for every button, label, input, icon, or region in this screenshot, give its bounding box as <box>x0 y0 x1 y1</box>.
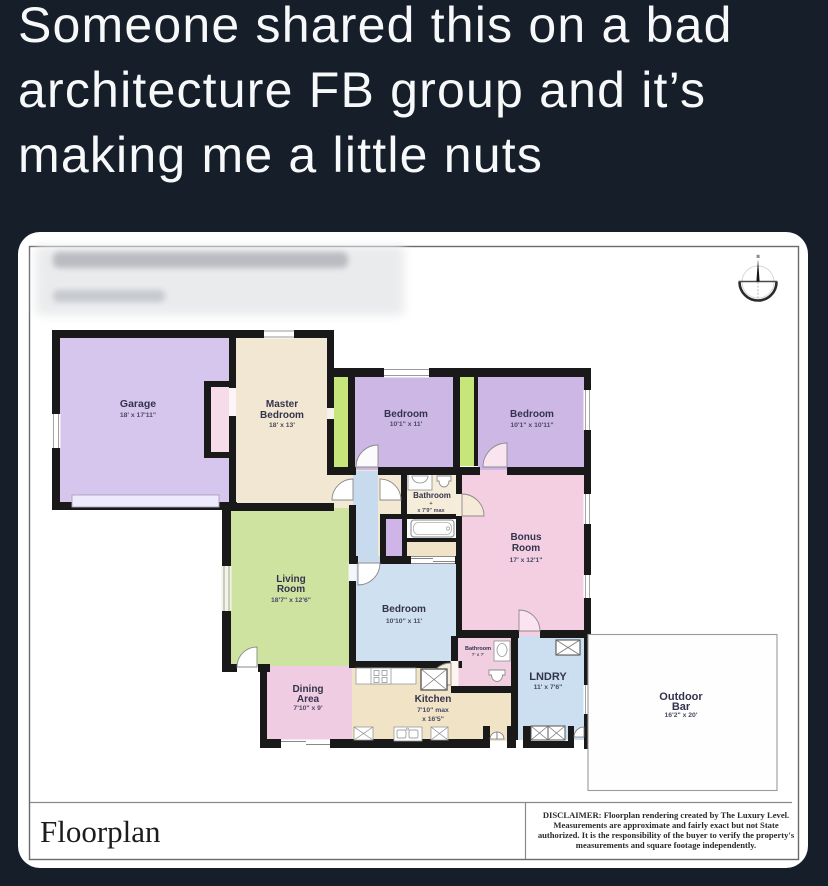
svg-text:LNDRY: LNDRY <box>529 671 567 683</box>
svg-text:Kitchen: Kitchen <box>415 694 452 705</box>
svg-text:+: + <box>429 501 432 507</box>
svg-text:18'7" x 12'6": 18'7" x 12'6" <box>271 597 311 604</box>
svg-text:Master: Master <box>266 399 298 410</box>
svg-text:10'10" x 11': 10'10" x 11' <box>386 618 423 625</box>
svg-text:Area: Area <box>297 694 320 705</box>
svg-text:7'10" max: 7'10" max <box>417 707 449 714</box>
svg-text:10'1" x 11': 10'1" x 11' <box>390 421 423 428</box>
svg-text:Floorplan: Floorplan <box>40 814 161 849</box>
svg-text:11' x 7'6": 11' x 7'6" <box>534 684 563 691</box>
svg-text:Bedroom: Bedroom <box>384 409 428 420</box>
svg-text:Bedroom: Bedroom <box>382 604 426 615</box>
svg-text:Bedroom: Bedroom <box>260 410 304 421</box>
svg-text:Room: Room <box>277 584 305 595</box>
svg-text:7'10" x 9': 7'10" x 9' <box>293 705 323 712</box>
svg-text:Room: Room <box>512 543 540 554</box>
svg-text:x 7'9" max: x 7'9" max <box>417 508 445 514</box>
svg-text:Bedroom: Bedroom <box>510 409 554 420</box>
svg-text:authorized. It is the responsi: authorized. It is the responsibility of … <box>538 830 795 840</box>
svg-text:18' x 17'11": 18' x 17'11" <box>120 412 156 419</box>
svg-text:measurements and square footag: measurements and square footage independ… <box>576 840 756 850</box>
svg-text:?' x ?': ?' x ?' <box>472 652 485 657</box>
svg-text:Garage: Garage <box>120 398 156 410</box>
svg-text:Bonus: Bonus <box>510 532 542 543</box>
svg-text:10'1" x 10'11": 10'1" x 10'11" <box>510 422 553 429</box>
svg-text:16'2" x 20': 16'2" x 20' <box>665 712 698 719</box>
svg-text:DISCLAIMER: Floorplan renderin: DISCLAIMER: Floorplan rendering created … <box>543 810 789 820</box>
svg-text:18' x 13': 18' x 13' <box>269 422 295 429</box>
svg-text:x 16'5": x 16'5" <box>422 716 444 723</box>
svg-text:Measurements are approximate a: Measurements are approximate and fairly … <box>553 820 779 830</box>
svg-text:Bathroom: Bathroom <box>413 491 451 500</box>
svg-text:17' x 12'1": 17' x 12'1" <box>510 557 543 564</box>
